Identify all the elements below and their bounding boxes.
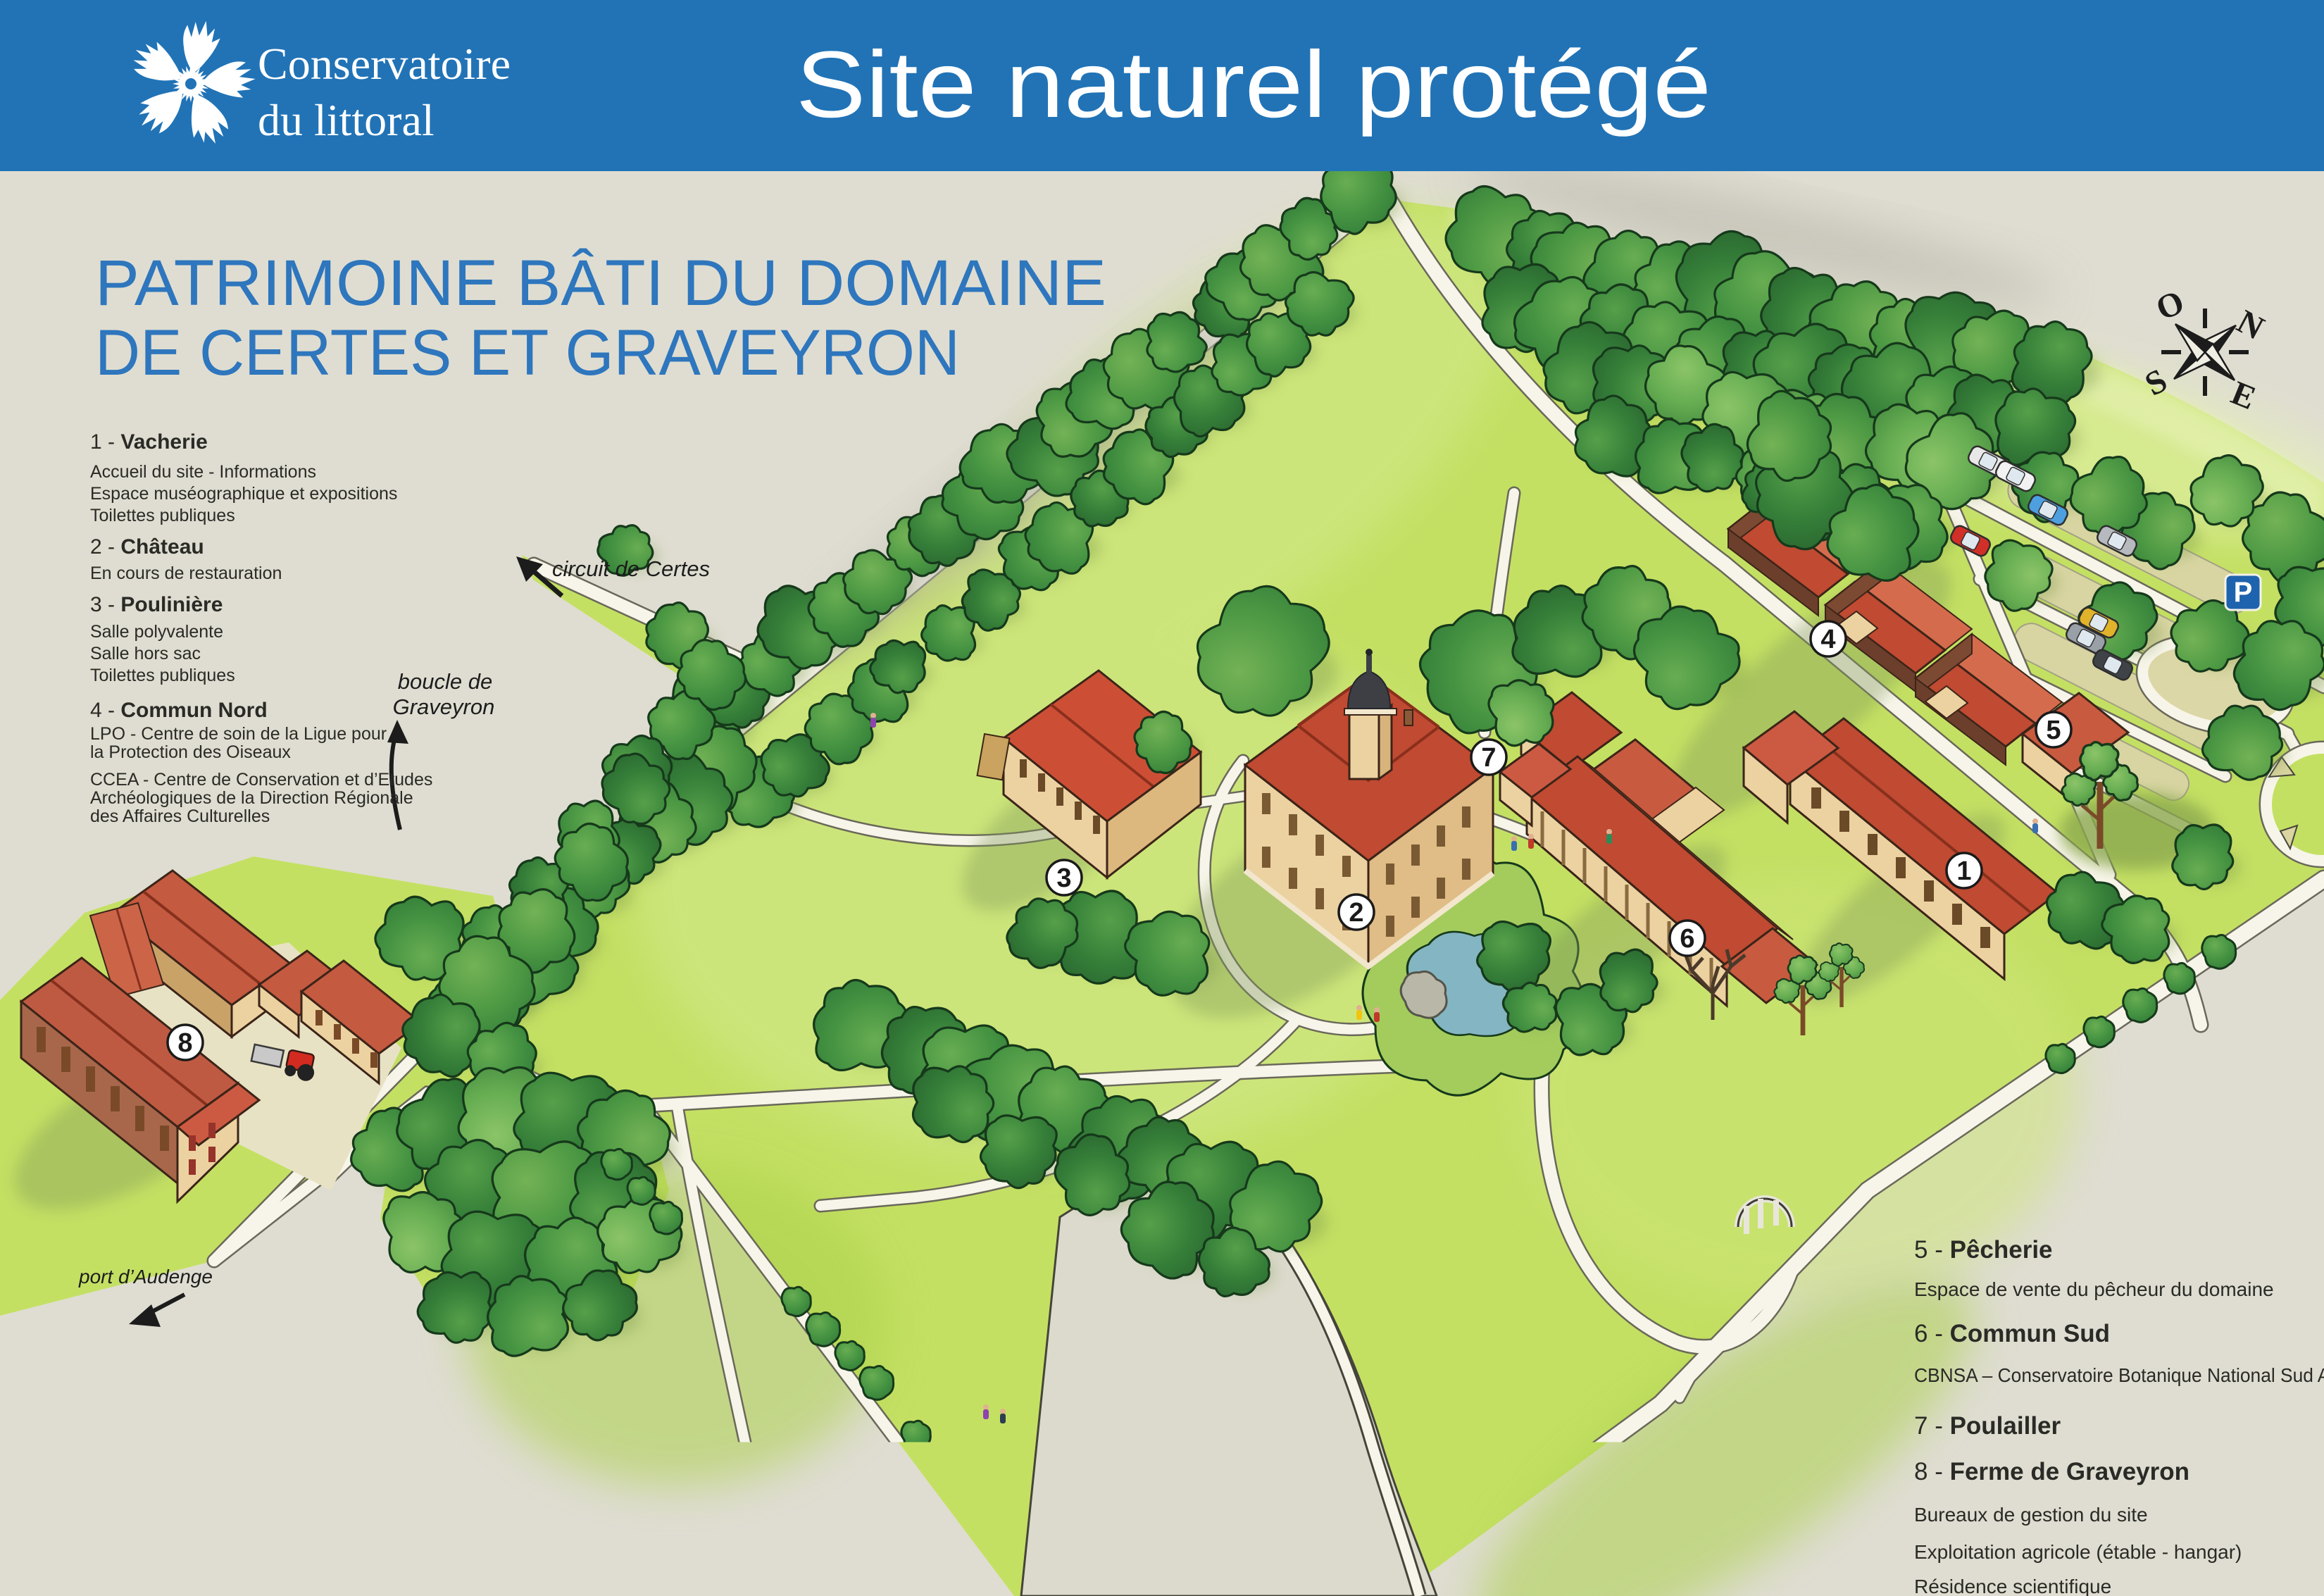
svg-text:circuit de Certes: circuit de Certes (552, 556, 710, 581)
svg-text:Salle hors sac: Salle hors sac (90, 644, 201, 663)
svg-text:1 - Vacherie: 1 - Vacherie (90, 430, 208, 454)
svg-text:7: 7 (1481, 743, 1496, 773)
svg-text:CBNSA – Conservatoire Botaniqu: CBNSA – Conservatoire Botanique National… (1914, 1364, 2324, 1386)
svg-text:8 - Ferme de Graveyron: 8 - Ferme de Graveyron (1914, 1458, 2189, 1485)
svg-text:2: 2 (1349, 898, 1363, 928)
svg-text:Bureaux de gestion du site: Bureaux de gestion du site (1914, 1504, 2148, 1526)
svg-text:5: 5 (2046, 716, 2061, 745)
svg-text:port d’Audenge: port d’Audenge (78, 1266, 213, 1288)
svg-text:7 - Poulailler: 7 - Poulailler (1914, 1412, 2061, 1440)
svg-text:3: 3 (1056, 864, 1071, 893)
svg-text:Graveyron: Graveyron (393, 694, 495, 719)
svg-text:Espace muséographique et expos: Espace muséographique et expositions (90, 484, 397, 504)
svg-text:8: 8 (177, 1028, 192, 1058)
svg-text:Conservatoire: Conservatoire (258, 39, 511, 89)
svg-text:Résidence scientifique: Résidence scientifique (1914, 1576, 2111, 1596)
svg-text:5 - Pêcherie: 5 - Pêcherie (1914, 1236, 2053, 1264)
svg-text:Site naturel protégé: Site naturel protégé (796, 32, 1711, 137)
svg-text:En cours de restauration: En cours de restauration (90, 563, 282, 583)
svg-text:LPO - Centre de soin de la Lig: LPO - Centre de soin de la Ligue pour (90, 724, 387, 744)
svg-text:boucle de: boucle de (398, 669, 492, 694)
svg-text:Toilettes publiques: Toilettes publiques (90, 666, 235, 685)
svg-text:6 - Commun Sud: 6 - Commun Sud (1914, 1320, 2110, 1347)
svg-text:du littoral: du littoral (258, 95, 435, 145)
svg-text:P: P (2234, 577, 2253, 608)
svg-text:4: 4 (1820, 625, 1835, 654)
svg-text:6: 6 (1680, 924, 1694, 954)
svg-text:Accueil du site - Informations: Accueil du site - Informations (90, 462, 316, 482)
svg-text:2 - Château: 2 - Château (90, 535, 204, 559)
svg-text:3 - Poulinière: 3 - Poulinière (90, 593, 223, 616)
svg-text:PATRIMOINE BÂTI DU DOMAINE: PATRIMOINE BÂTI DU DOMAINE (95, 247, 1106, 319)
svg-text:CCEA - Centre de Conservation: CCEA - Centre de Conservation et d’Etude… (90, 770, 432, 790)
svg-text:4 - Commun Nord: 4 - Commun Nord (90, 699, 268, 722)
svg-text:DE CERTES ET GRAVEYRON: DE CERTES ET GRAVEYRON (95, 317, 960, 389)
svg-text:la Protection des Oiseaux: la Protection des Oiseaux (90, 742, 291, 762)
svg-text:Exploitation agricole (étable: Exploitation agricole (étable - hangar) (1914, 1541, 2242, 1563)
svg-text:des Affaires Culturelles: des Affaires Culturelles (90, 806, 270, 826)
svg-text:Toilettes publiques: Toilettes publiques (90, 506, 235, 525)
svg-text:Salle polyvalente: Salle polyvalente (90, 622, 223, 642)
svg-text:1: 1 (1956, 856, 1971, 886)
svg-text:Espace de vente du pêcheur du: Espace de vente du pêcheur du domaine (1914, 1278, 2274, 1300)
svg-text:Archéologiques de la Directio: Archéologiques de la Direction Régionale (90, 788, 413, 808)
